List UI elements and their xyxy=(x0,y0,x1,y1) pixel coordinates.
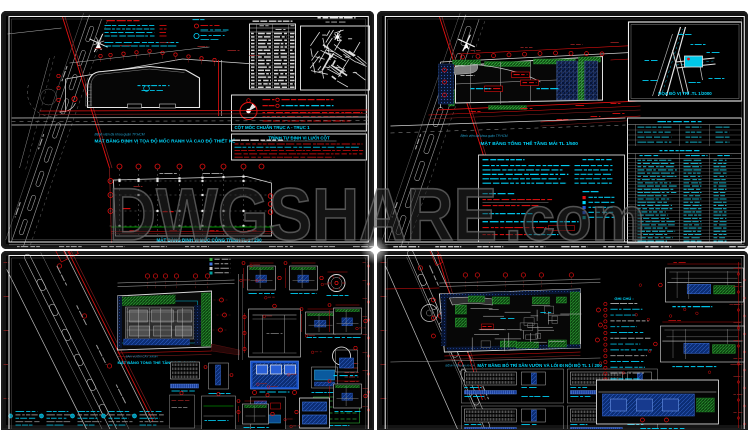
svg-text:DWGSHARE: DWGSHARE xyxy=(109,173,497,256)
svg-text:.com: .com xyxy=(505,185,645,254)
